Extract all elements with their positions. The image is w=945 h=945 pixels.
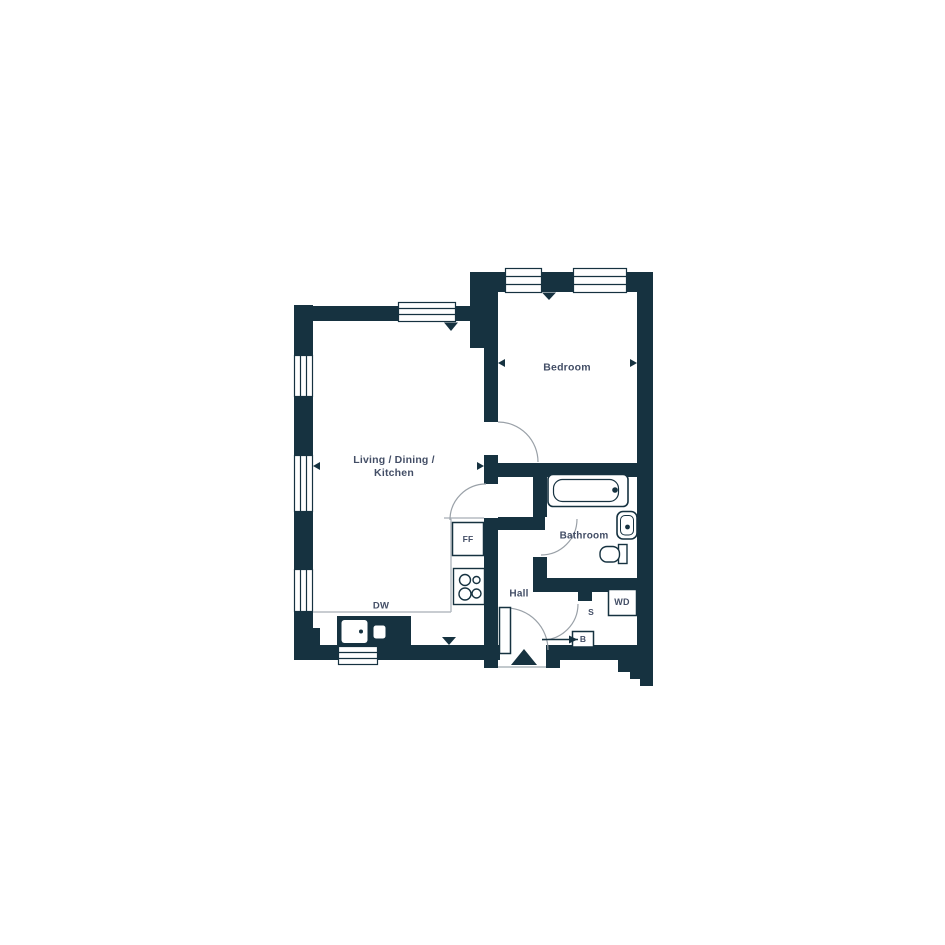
- hob-burner: [473, 577, 480, 584]
- hall-label: Hall: [509, 588, 528, 601]
- hob-burner: [460, 575, 471, 586]
- living-room-label: Living / Dining / Kitchen: [353, 454, 435, 480]
- fridge-freezer-label: FF: [463, 534, 474, 544]
- entrance-door-arc: [506, 608, 548, 650]
- window-left-1: [295, 356, 313, 397]
- boiler-label: B: [580, 634, 586, 644]
- arrow-bedroom-right: [630, 359, 637, 367]
- right-wall: [637, 272, 653, 670]
- hall-stub-wall: [498, 517, 545, 530]
- divider-wall-stub: [484, 455, 498, 484]
- bottom-wall-left: [294, 645, 500, 660]
- arrow-bedroom-top: [542, 293, 556, 301]
- arrow-living-left: [313, 462, 320, 470]
- window-bedroom-1: [506, 269, 542, 293]
- basin-drain: [625, 525, 630, 530]
- toilet: [600, 545, 627, 564]
- window-bedroom-2: [574, 269, 627, 293]
- hob-burner: [459, 588, 471, 600]
- floor-plan: Living / Dining / Kitchen Bedroom Bathro…: [0, 0, 945, 945]
- bathroom-label: Bathroom: [560, 530, 609, 543]
- divider-wall-lower: [484, 518, 498, 668]
- arrow-bedroom-left: [498, 359, 505, 367]
- storage-label: S: [588, 607, 594, 617]
- dishwasher-label: DW: [373, 601, 389, 612]
- arrow-kitchen-bottom: [442, 637, 456, 645]
- basin: [617, 512, 637, 540]
- corner-step-3: [640, 645, 653, 686]
- hob: [454, 569, 485, 605]
- entrance-marker-triangle: [511, 649, 537, 665]
- living-room-label-line1: Living / Dining /: [353, 454, 435, 467]
- bedroom-label: Bedroom: [543, 362, 591, 375]
- sink-tap: [359, 630, 363, 634]
- bathtub: [548, 475, 628, 507]
- kitchen-sink-unit: [337, 616, 411, 647]
- floor-plan-drawing: [0, 0, 945, 945]
- hob-burner: [472, 589, 481, 598]
- living-room-label-line2: Kitchen: [353, 467, 435, 480]
- window-bottom-kitchen: [339, 647, 378, 665]
- window-left-3: [295, 570, 313, 612]
- divider-wall-upper: [484, 348, 498, 422]
- bathroom-wall-upper: [533, 477, 547, 517]
- washer-dryer-label: WD: [614, 597, 629, 607]
- top-wall-living: [294, 306, 485, 321]
- window-left-2: [295, 456, 313, 512]
- storage-door-jamb: [578, 592, 592, 601]
- entrance-door-leaf: [500, 608, 511, 654]
- living-door-arc: [450, 484, 486, 520]
- bath-tap: [612, 487, 618, 493]
- bedroom-door-arc: [498, 422, 538, 462]
- arrow-living-right: [477, 462, 484, 470]
- bathroom-wall-lower: [533, 557, 547, 580]
- arrow-living-top: [444, 323, 458, 332]
- window-top-living: [399, 303, 456, 322]
